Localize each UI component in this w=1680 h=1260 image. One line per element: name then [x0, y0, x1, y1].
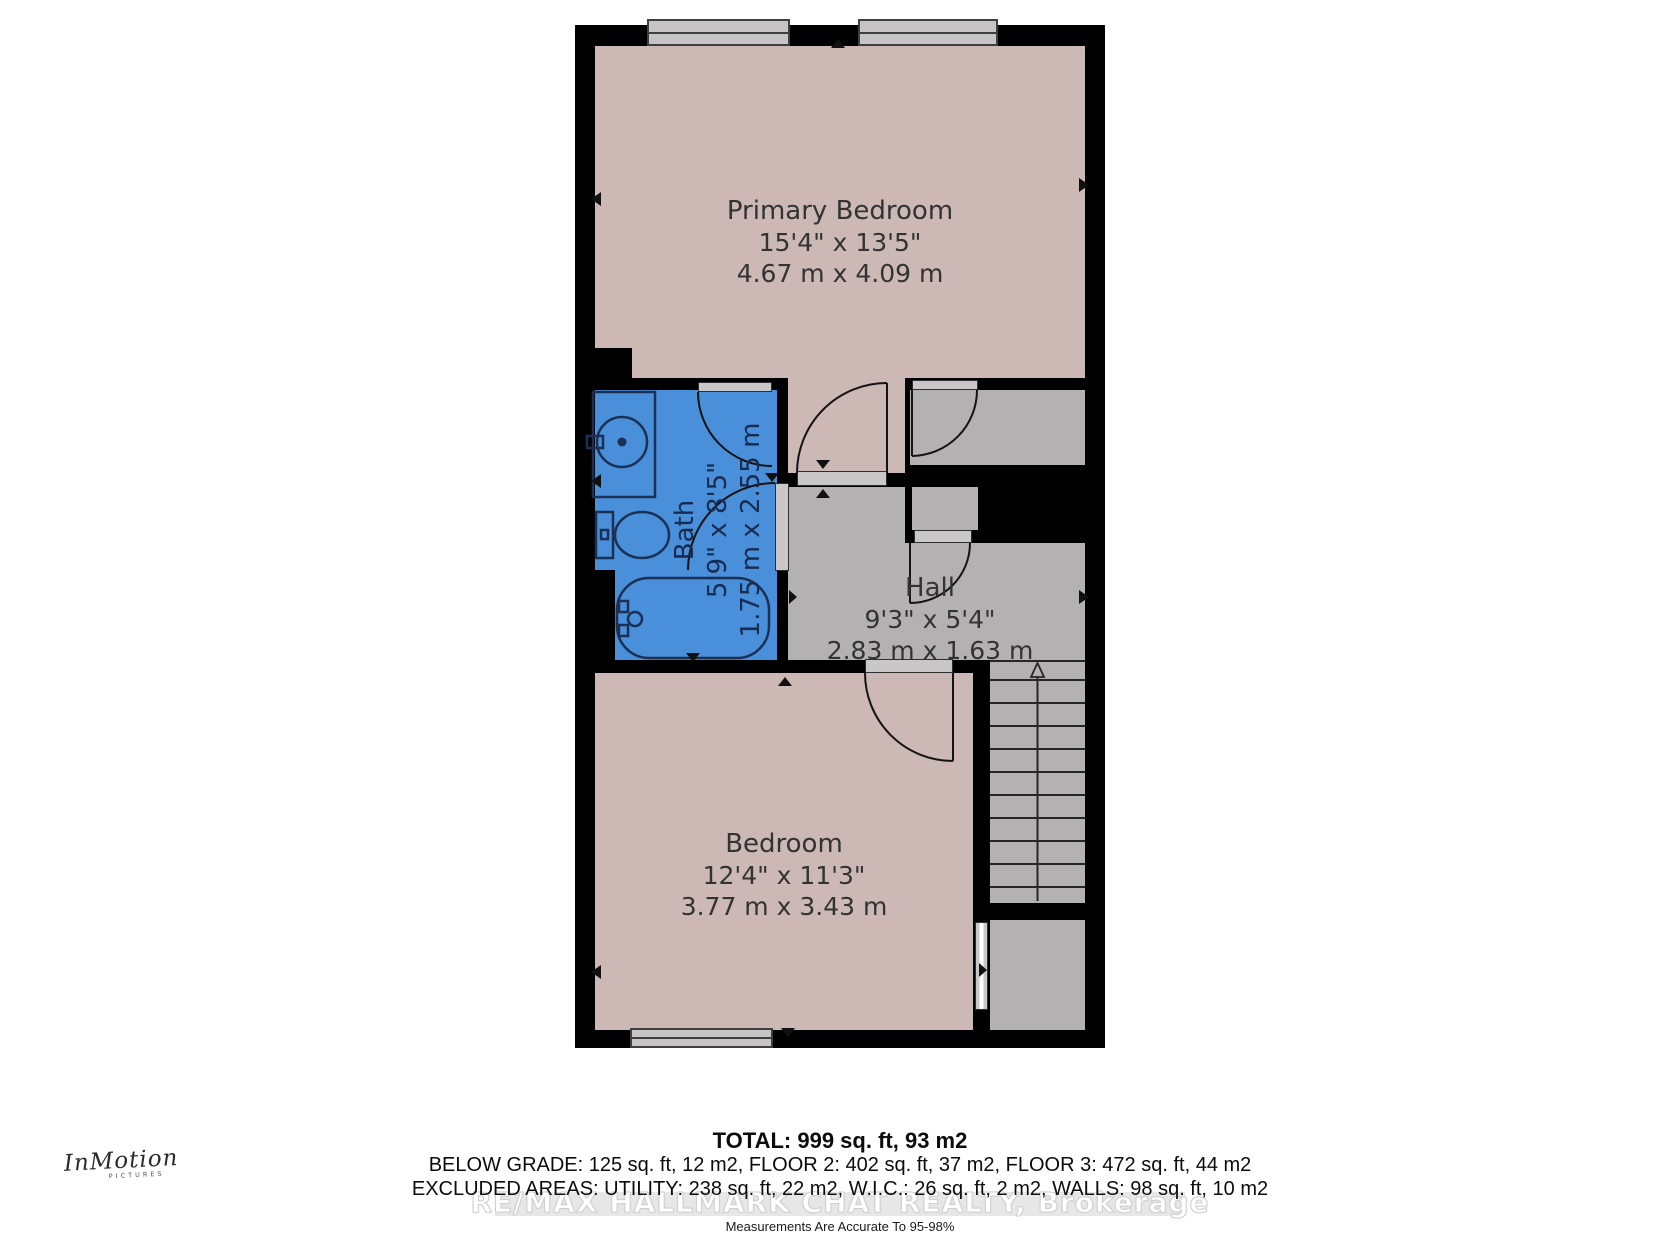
- label-hall: Hall 9'3" x 5'4" 2.83 m x 1.63 m: [770, 573, 1090, 666]
- primary-bedroom-nook: [788, 378, 905, 473]
- door-sill-primary-hall: [797, 471, 887, 486]
- hall-alcove: [912, 487, 978, 530]
- room-name: Bedroom: [584, 829, 984, 860]
- summary-total: TOTAL: 999 sq. ft, 93 m2: [0, 1128, 1680, 1154]
- wall-step-bath: [595, 570, 615, 660]
- door-sill-alcove: [914, 530, 972, 543]
- window-bedroom: [630, 1028, 773, 1048]
- door-sill-closet: [912, 380, 978, 390]
- room-dims-imperial: 15'4" x 13'5": [640, 227, 1040, 258]
- label-bath: Bath 5'9" x 8'5" 1.75 m x 2.55 m: [669, 390, 769, 670]
- window-primary-left: [647, 19, 790, 46]
- room-dims-metric: 3.77 m x 3.43 m: [584, 891, 984, 922]
- floor-plan-page: Primary Bedroom 15'4" x 13'5" 4.67 m x 4…: [0, 0, 1680, 1260]
- label-bedroom: Bedroom 12'4" x 11'3" 3.77 m x 3.43 m: [584, 829, 984, 922]
- room-dims-imperial: 9'3" x 5'4": [770, 604, 1090, 635]
- room-name: Bath: [669, 390, 702, 670]
- door-sill-storage: [975, 922, 988, 1010]
- window-primary-right: [858, 19, 998, 46]
- staircase: [990, 660, 1085, 903]
- room-closet: [910, 390, 1085, 465]
- room-name: Hall: [770, 573, 1090, 604]
- door-sill-bath-right: [775, 483, 789, 571]
- summary-accuracy: Measurements Are Accurate To 95-98%: [0, 1219, 1680, 1234]
- room-dims-metric: 2.83 m x 1.63 m: [770, 635, 1090, 666]
- storage-area: [990, 920, 1085, 1030]
- room-dims-imperial: 12'4" x 11'3": [584, 860, 984, 891]
- wall-step: [595, 348, 632, 380]
- room-dims-metric: 4.67 m x 4.09 m: [640, 258, 1040, 289]
- label-primary-bedroom: Primary Bedroom 15'4" x 13'5" 4.67 m x 4…: [640, 196, 1040, 289]
- summary-floors: BELOW GRADE: 125 sq. ft, 12 m2, FLOOR 2:…: [0, 1154, 1680, 1177]
- room-dims-metric: 1.75 m x 2.55 m: [735, 390, 768, 670]
- room-name: Primary Bedroom: [640, 196, 1040, 227]
- room-dims-imperial: 5'9" x 8'5": [702, 390, 735, 670]
- summary-excluded: EXCLUDED AREAS: UTILITY: 238 sq. ft, 22 …: [0, 1178, 1680, 1201]
